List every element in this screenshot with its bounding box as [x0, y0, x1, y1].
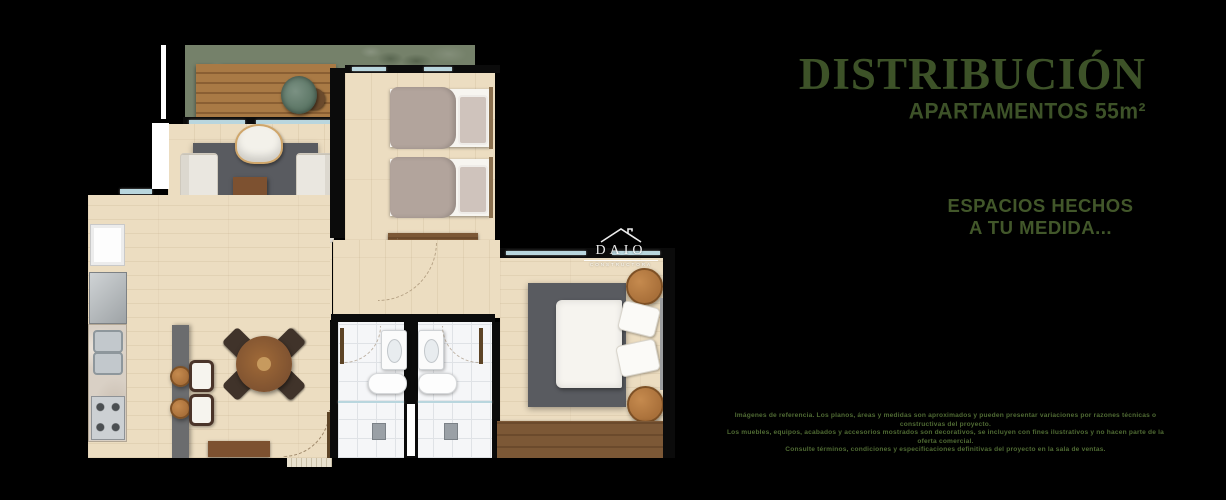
entrance-mat: [287, 458, 332, 467]
master-wardrobe: [497, 421, 663, 458]
master-pillow-1: [617, 300, 661, 338]
duct-niche: [152, 123, 169, 189]
master-duvet: [556, 300, 622, 388]
master-window-glass-1: [506, 251, 586, 255]
disclaimer-line1: Imágenes de referencia. Los planos, área…: [718, 412, 1173, 429]
vanity-right: [418, 330, 444, 370]
bathroom-right-door-leaf: [479, 328, 483, 364]
armchair-top: [235, 124, 283, 164]
bathrooms-divider-gap: [407, 404, 415, 456]
master-right-wall: [663, 248, 675, 458]
vanity-left-basin: [387, 339, 402, 363]
island-tray-1: [170, 366, 191, 387]
bar-stool-1: [189, 360, 214, 392]
disclaimer-line2: Los muebles, equipos, acabados y accesor…: [718, 429, 1173, 446]
legal-disclaimer: Imágenes de referencia. Los planos, área…: [718, 412, 1173, 455]
kitchen-island: [172, 325, 189, 458]
page-subtitle: APARTAMENTOS 55m²: [799, 99, 1146, 124]
left-window: [120, 189, 152, 194]
bed1-duvet: [390, 87, 456, 149]
shower-glass-right: [418, 401, 492, 403]
balcony-chair: [281, 76, 317, 114]
shower-drain-left: [372, 423, 386, 440]
kitchen-washer: [90, 224, 125, 266]
kitchen-sink: [93, 330, 121, 372]
tagline-line1: ESPACIOS HECHOS: [938, 195, 1143, 217]
watermark-brand-text: DAIO: [584, 243, 658, 261]
wall-living-bedroom2: [330, 68, 345, 238]
bar-stool-2: [189, 394, 214, 426]
island-tray-2: [170, 398, 191, 419]
header-block: DISTRIBUCIÓN APARTAMENTOS 55m²: [799, 48, 1146, 124]
shower-glass-left: [338, 401, 404, 403]
master-pillow-2: [615, 338, 661, 378]
sink-basin-2: [93, 352, 123, 375]
bed2-headboard: [489, 157, 493, 218]
bathrooms-left-wall: [330, 322, 338, 458]
vanity-right-basin: [424, 339, 439, 363]
bedroom2-window-glass-2: [424, 67, 452, 71]
sideboard: [208, 441, 270, 457]
disclaimer-line3: Consulte términos, condiciones y especif…: [718, 446, 1173, 455]
tagline-block: ESPACIOS HECHOS A TU MEDIDA...: [938, 195, 1143, 239]
sink-basin-1: [93, 330, 123, 353]
kitchen-fridge: [89, 272, 127, 324]
brand-watermark: DAIO CONSTRUCTORA: [584, 226, 658, 267]
bedroom2-window-glass-1: [352, 67, 386, 71]
bed2-duvet: [390, 157, 456, 218]
vanity-left: [381, 330, 407, 370]
toilet-left: [368, 373, 407, 394]
page-title: DISTRIBUCIÓN: [799, 48, 1146, 100]
master-bed: [556, 298, 666, 390]
bed-single-2: [390, 157, 493, 218]
dining-table: [236, 336, 292, 392]
bed2-pillow: [458, 165, 488, 214]
toilet-right: [418, 373, 457, 394]
watermark-subtext: CONSTRUCTORA: [584, 262, 658, 267]
nightstand-bottom: [627, 386, 664, 423]
dining-table-center: [257, 357, 271, 371]
kitchen-stove: [91, 396, 125, 440]
shower-drain-right: [444, 423, 458, 440]
tagline-line2: A TU MEDIDA...: [938, 217, 1143, 239]
bed1-headboard: [489, 87, 493, 149]
house-roof-icon: [599, 226, 643, 243]
bed1-pillow: [458, 95, 488, 145]
bed-single-1: [390, 87, 493, 149]
duct-slot: [161, 45, 166, 119]
